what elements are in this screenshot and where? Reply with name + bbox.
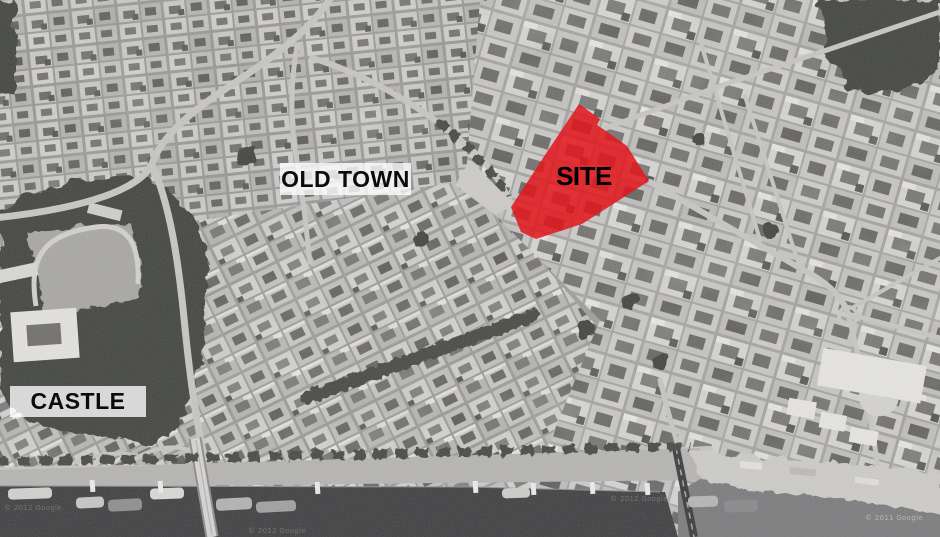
photo-grain [0, 0, 940, 537]
google-watermark: © 2012 Google [248, 527, 306, 535]
satellite-aerial-photo [0, 0, 940, 537]
label-castle: CASTLE [10, 386, 146, 417]
label-site: SITE [553, 163, 615, 189]
google-watermark: © 2012 Google [4, 504, 62, 512]
label-old-town: OLD TOWN [280, 163, 411, 195]
google-watermark: © 2012 Google [610, 495, 668, 503]
google-watermark: © 2011 Google [865, 514, 923, 522]
site-location-map: OLD TOWN CASTLE SITE © 2012 Google © 201… [0, 0, 940, 537]
